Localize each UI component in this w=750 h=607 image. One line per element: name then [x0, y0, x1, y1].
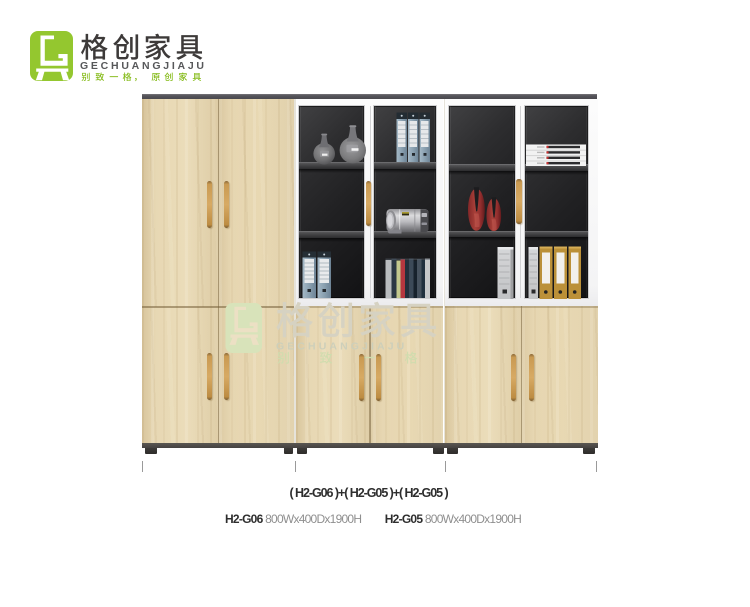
svg-text:GECHUANGJIAJU: GECHUANGJIAJU — [276, 341, 407, 353]
